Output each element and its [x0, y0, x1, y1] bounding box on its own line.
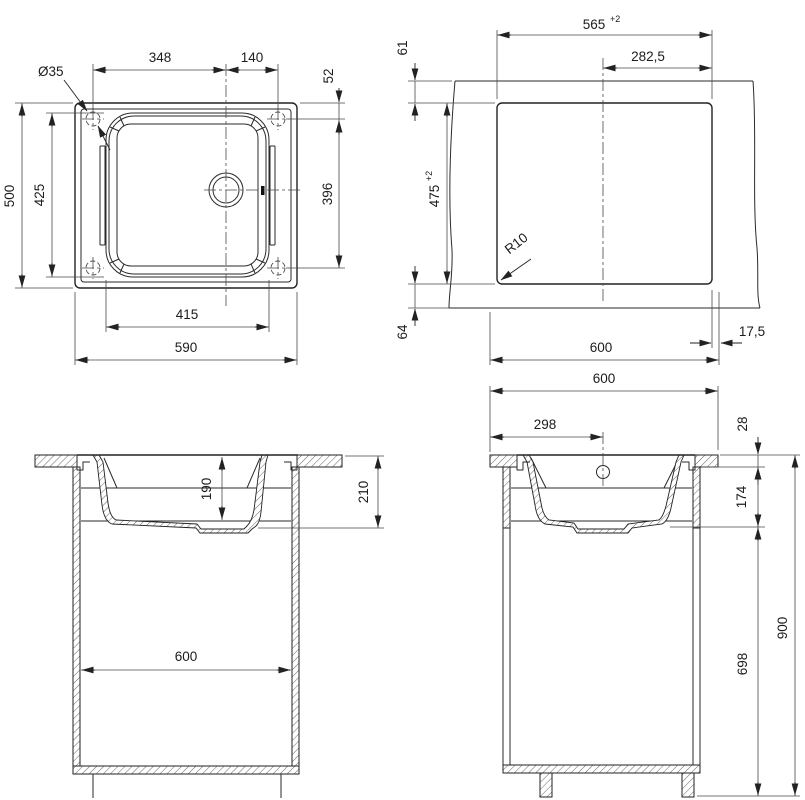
dim-500-425: 500 425	[2, 103, 104, 288]
hole-diameter-label: Ø35	[38, 64, 64, 79]
top-view: 348 140 Ø35 52 396 500	[2, 50, 345, 365]
dim-600-side: 600	[490, 371, 718, 452]
cabinet-bottom	[73, 766, 299, 774]
far-corner-edges	[104, 458, 260, 488]
dim-drain-to-hole: 140	[241, 50, 264, 65]
far-corner-edges-side	[531, 458, 679, 488]
dim-center-to-edge: 282,5	[631, 49, 665, 64]
dim-r10: R10	[501, 230, 531, 280]
countertop-break-right	[753, 81, 760, 308]
dim-under-counter: 174	[734, 485, 749, 508]
dim-edge-to-hole: 52	[321, 68, 336, 83]
dim-174: 174	[670, 467, 765, 527]
dim-348-140: 348 140	[93, 50, 278, 110]
dim-bowl-depth: 425	[32, 184, 47, 207]
dim-298: 298	[490, 417, 603, 437]
dim-hole-to-hole: 396	[320, 183, 335, 206]
dim-698: 698	[697, 527, 800, 796]
technical-drawing-page: 348 140 Ø35 52 396 500	[0, 0, 805, 800]
dim-cabinet-width: 600	[590, 340, 613, 355]
foot-front	[540, 773, 552, 797]
dim-600-front: 600	[81, 649, 291, 670]
dim-total-depth: 210	[356, 481, 371, 504]
dim-bowl-inner-depth: 190	[199, 478, 214, 501]
cabinet-bottom-side	[503, 765, 700, 773]
cabinet-rail-front	[503, 467, 510, 528]
countertop-right	[297, 455, 342, 467]
dim-cutout-depth-tol: +2	[424, 171, 434, 181]
cabinet-panel-edges	[503, 528, 700, 765]
side-section-view: 600 298 28 174 698	[490, 371, 800, 797]
dim-cabinet-width-front: 600	[175, 649, 198, 664]
dim-edge-to-drain: 298	[534, 417, 557, 432]
dim-bottom-offset: 64	[395, 324, 410, 340]
dim-600-175: 600 17,5	[490, 290, 765, 365]
rim-lips-side	[517, 455, 695, 470]
cabinet-rail-back	[693, 467, 700, 528]
cutout-view: 565 +2 282,5 61 475 +2	[395, 14, 765, 365]
countertop-left	[35, 455, 77, 467]
countertop-back	[695, 455, 718, 467]
countertop-break-left	[449, 81, 455, 308]
front-section-view: 190 210 600	[35, 455, 384, 798]
sink-installation-drawing: 348 140 Ø35 52 396 500	[0, 0, 805, 800]
dim-cabinet-height: 698	[735, 653, 750, 676]
countertop-edges	[449, 81, 760, 308]
dim-counter-thickness: 28	[735, 416, 750, 431]
dim-cutout-width-tol: +2	[610, 14, 620, 24]
dim-28: 28	[702, 416, 800, 485]
dim-counter-depth: 600	[593, 371, 616, 386]
dim-corner-radius: R10	[502, 230, 531, 257]
bowl-rim-outer	[106, 113, 269, 277]
dim-52-396: 52 396	[286, 68, 345, 268]
dim-hole-to-drain: 348	[149, 50, 172, 65]
dim-415-590: 415 590	[75, 280, 297, 365]
drain	[204, 173, 301, 207]
dim-64: 64	[395, 266, 449, 340]
dim-900: 900	[775, 455, 795, 796]
dim-565: 565 +2	[497, 14, 712, 99]
countertop-front	[490, 455, 517, 467]
sink-rim-inner	[81, 109, 291, 282]
cabinet-wall-left	[73, 467, 80, 766]
dim-cutout-depth: 475	[427, 185, 442, 208]
cutout-rect	[497, 103, 712, 284]
dim-overall-depth: 500	[2, 185, 17, 208]
plinth	[93, 774, 281, 798]
overflow-mark	[261, 186, 265, 195]
dim-side-clearance: 17,5	[739, 324, 765, 339]
rim-channels	[100, 146, 275, 245]
dim-overall-width: 590	[175, 340, 198, 355]
dim-hole-diameter: Ø35	[38, 64, 110, 150]
bowl-opening	[117, 124, 258, 266]
cabinet-wall-right	[292, 467, 299, 766]
foot-back	[682, 773, 694, 797]
dim-2825: 282,5	[603, 49, 712, 68]
dim-top-offset: 61	[395, 40, 410, 55]
dim-cutout-width: 565	[583, 17, 606, 32]
dim-overall-height: 900	[775, 617, 790, 640]
dim-bowl-width: 415	[176, 307, 199, 322]
